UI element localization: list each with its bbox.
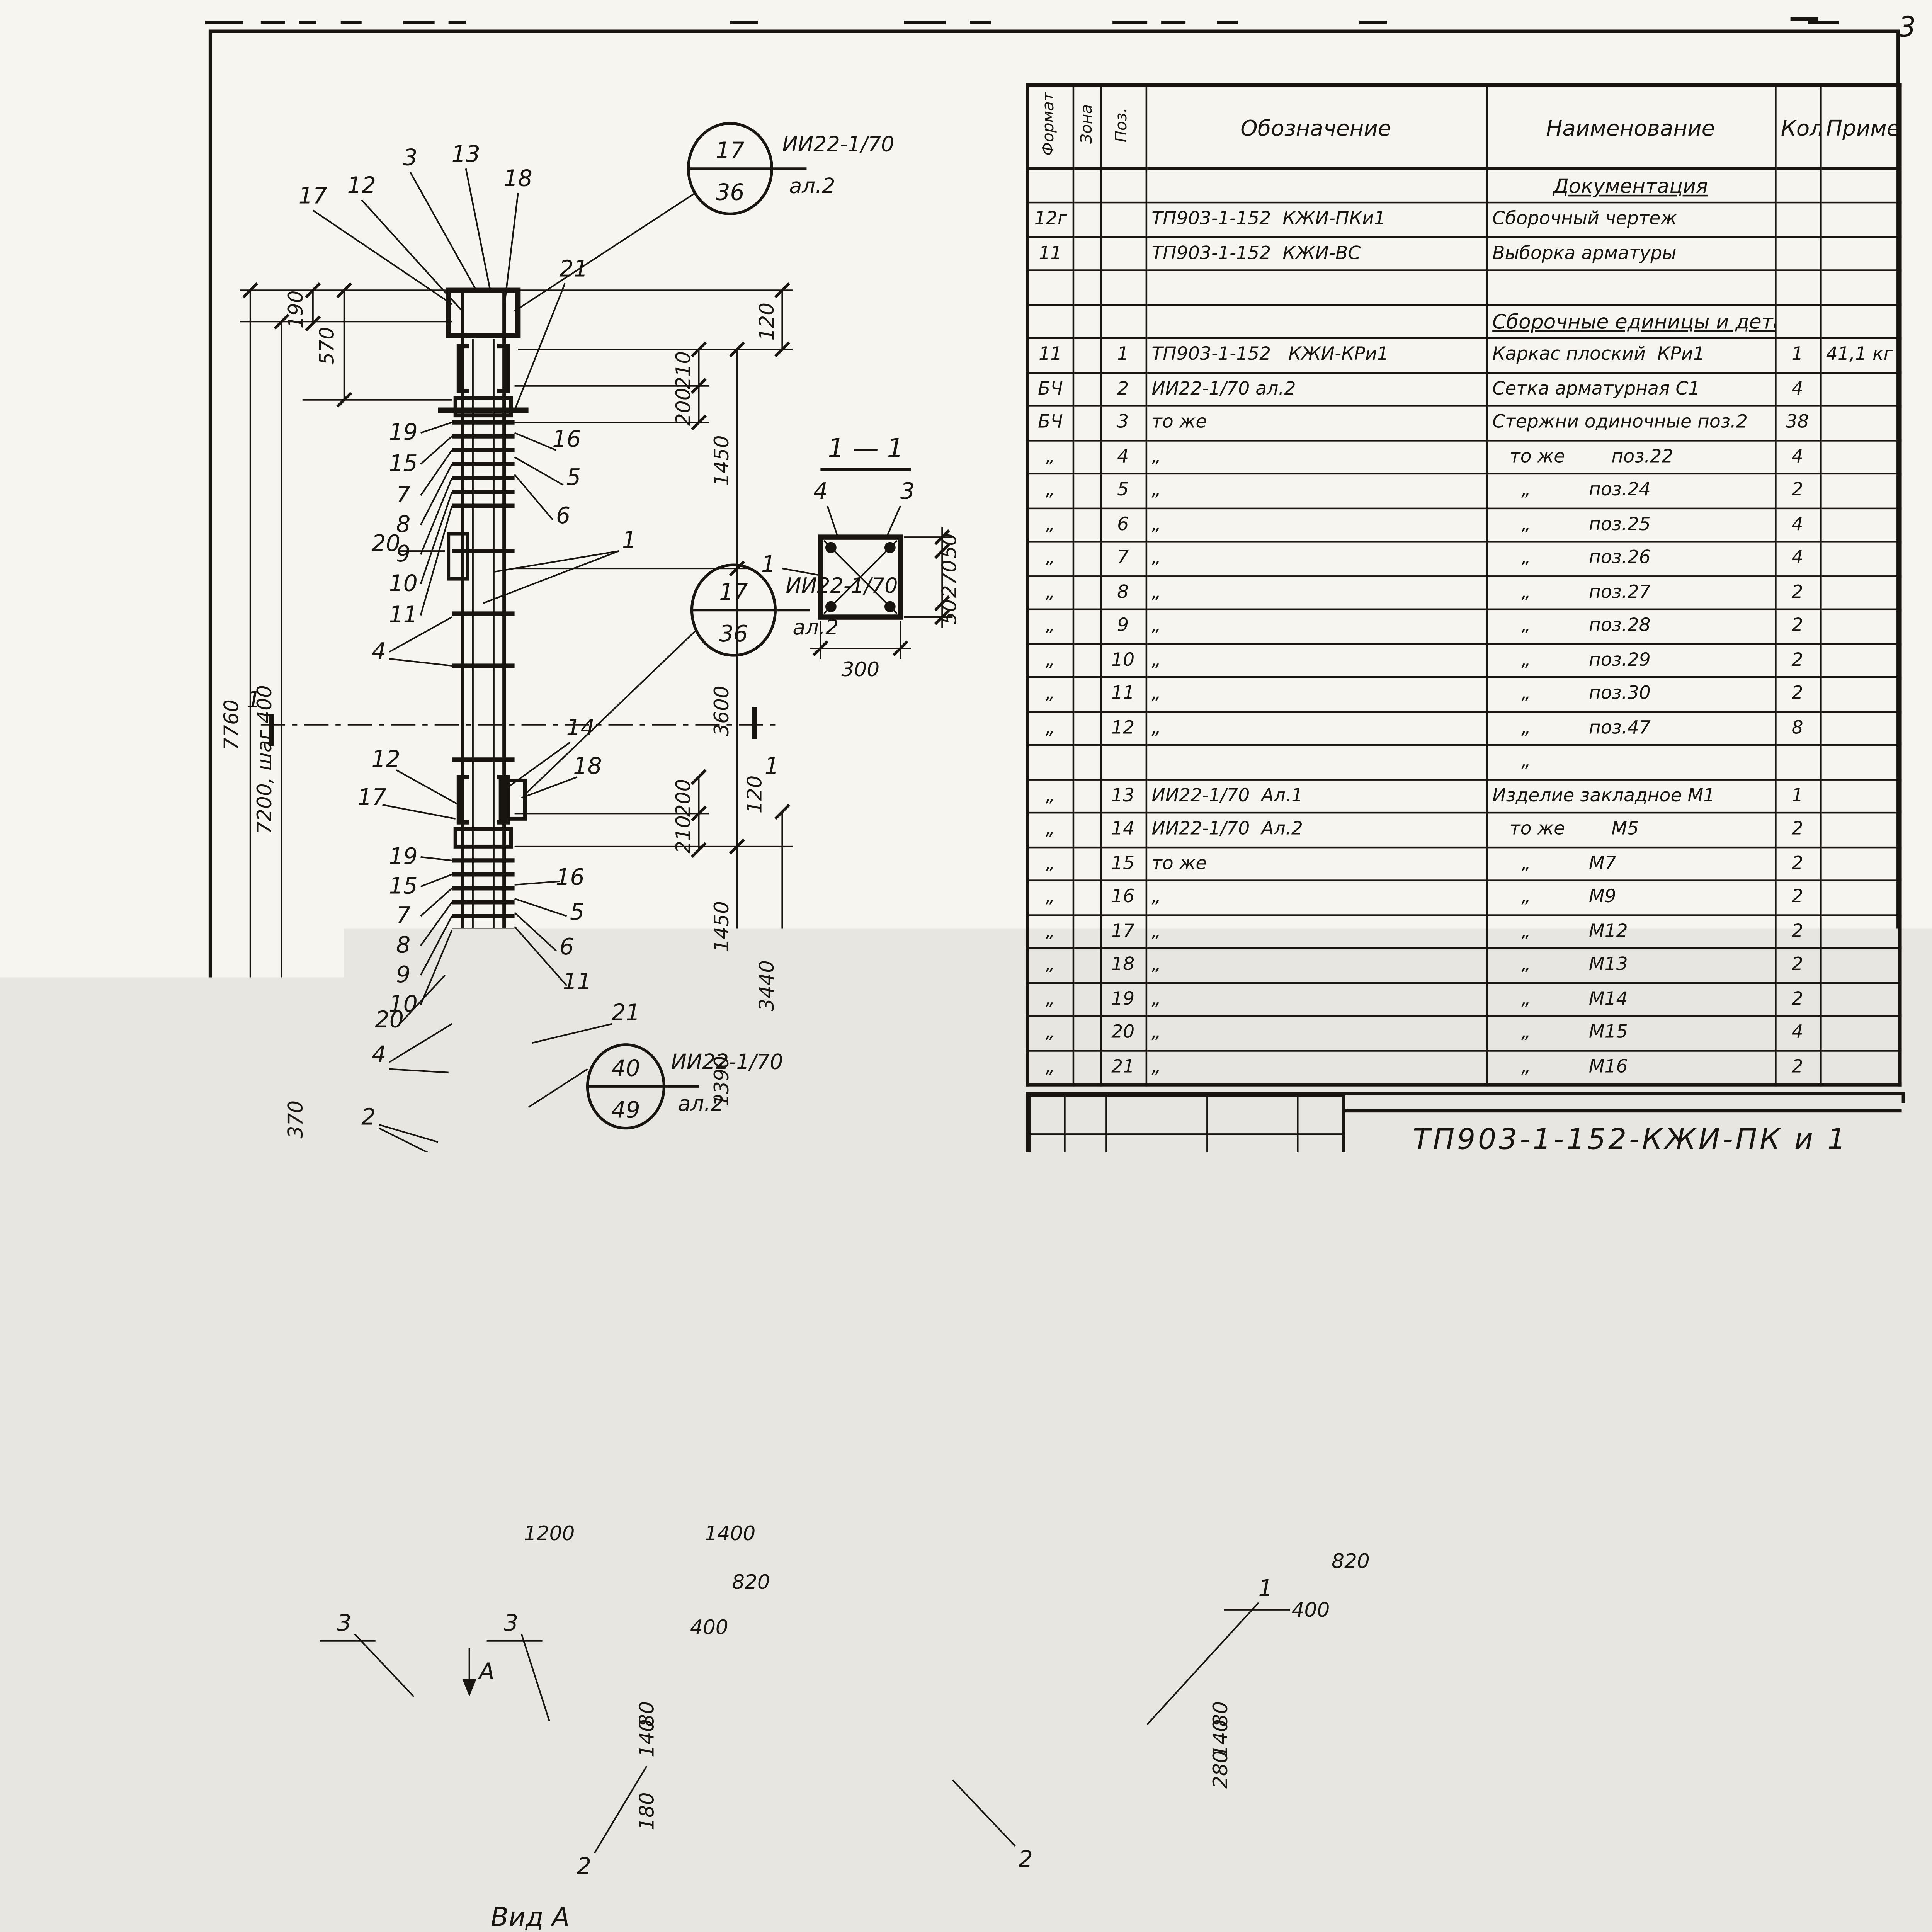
- cell-n: „ поз.25: [1486, 508, 1775, 542]
- cell-o: [1146, 745, 1486, 779]
- cell-pr: [1820, 541, 1900, 575]
- svg-text:280: 280: [1209, 1750, 1232, 1789]
- svg-text:15: 15: [389, 450, 417, 476]
- cell-f: „: [1027, 508, 1073, 542]
- cell-pr: [1820, 575, 1900, 609]
- svg-text:1 — 1: 1 — 1: [828, 433, 903, 463]
- sheet1-drawing: 1 1 7760 7200, шаг 400: [209, 29, 1026, 1335]
- svg-text:210: 210: [672, 815, 695, 854]
- svg-text:13: 13: [451, 141, 480, 167]
- spec-row: „11„ „ поз.302: [1027, 677, 1900, 711]
- cell-o: ТП903-1-152 КЖИ-КРи1: [1146, 338, 1486, 372]
- svg-text:Вид А: Вид А: [491, 1902, 570, 1932]
- cell-k: 1: [1775, 779, 1820, 813]
- page-number: 3: [1898, 10, 1916, 43]
- svg-text:1450: 1450: [710, 901, 733, 952]
- cell-z: [1073, 813, 1100, 847]
- cell-z: [1073, 745, 1100, 779]
- cell-p: 13: [1100, 779, 1146, 813]
- cell-f: 11: [1027, 236, 1073, 270]
- cell-z: [1073, 982, 1100, 1016]
- spec-row: „15то же „ М72: [1027, 847, 1900, 881]
- cell-o: „: [1146, 914, 1486, 948]
- cell-p: 4: [1100, 440, 1146, 474]
- cell-o: „: [1146, 948, 1486, 982]
- stamp-cell: Подп. и дата: [38, 1133, 94, 1260]
- spec-row: Сборочные единицы и детали: [1027, 304, 1900, 338]
- svg-text:400: 400: [690, 1616, 728, 1639]
- cell-p: [1100, 270, 1146, 304]
- cell-pr: [1820, 881, 1900, 915]
- sheet2-drawing: 1200 1400 820 400 820 400 80 140 180 80 …: [209, 1391, 1893, 1932]
- cell-n: то же М5: [1486, 813, 1775, 847]
- spec-row: „5„ „ поз.242: [1027, 474, 1900, 508]
- cell-n: „ поз.30: [1486, 677, 1775, 711]
- svg-text:17: 17: [358, 784, 386, 810]
- cell-k: 2: [1775, 982, 1820, 1016]
- cell-z: [1073, 914, 1100, 948]
- cell-pr: [1820, 982, 1900, 1016]
- svg-text:9: 9: [396, 961, 410, 988]
- spec-row: „10„ „ поз.292: [1027, 643, 1900, 677]
- svg-text:19: 19: [389, 419, 417, 445]
- svg-text:7: 7: [396, 481, 410, 508]
- cell-p: [1100, 236, 1146, 270]
- cell-o: „: [1146, 609, 1486, 643]
- header-naimenovanie: Наименование: [1486, 85, 1775, 168]
- cell-pr: [1820, 304, 1900, 338]
- spec-row: „17„ „ М122: [1027, 914, 1900, 948]
- svg-text:270: 270: [938, 560, 961, 598]
- cell-pr: [1820, 440, 1900, 474]
- cell-pr: [1820, 813, 1900, 847]
- cell-n: „ М7: [1486, 847, 1775, 881]
- spec-row: „16„ „ М92: [1027, 881, 1900, 915]
- cell-p: 10: [1100, 643, 1146, 677]
- cell-o: ИИ22-1/70 Ал.2: [1146, 813, 1486, 847]
- cell-o: [1146, 304, 1486, 338]
- series-ref-40-49: 40 49 ИИ22-1/70 ал.2: [588, 1045, 783, 1128]
- cell-n: „ М13: [1486, 948, 1775, 982]
- svg-text:17: 17: [299, 182, 327, 209]
- svg-text:4: 4: [813, 478, 828, 504]
- cell-pr: [1820, 236, 1900, 270]
- header-oboznachenie: Обозначение: [1146, 85, 1486, 168]
- svg-text:820: 820: [1332, 1550, 1370, 1573]
- cell-k: 8: [1775, 711, 1820, 745]
- drawing-title-line2: каркас ПКи1: [1352, 1255, 1658, 1283]
- svg-text:300: 300: [841, 658, 879, 681]
- cell-n: „: [1486, 745, 1775, 779]
- cell-p: 16: [1100, 881, 1146, 915]
- cell-z: [1073, 609, 1100, 643]
- svg-text:21: 21: [611, 1000, 640, 1026]
- cell-s: [1207, 1195, 1298, 1218]
- spec-header-row: Формат Зона Поз. Обозначение Наименовани…: [1027, 85, 1900, 168]
- header-poz: Поз.: [1100, 85, 1146, 168]
- cell-f: „: [1027, 881, 1073, 915]
- cell-n: „ М15: [1486, 1016, 1775, 1050]
- svg-text:ИИ22-1/70: ИИ22-1/70: [671, 1050, 783, 1074]
- cell-k: 2: [1775, 474, 1820, 508]
- sheet1-titleblock: Изм Лист N докум Подпись Дата Провер.Исп…: [1026, 1092, 1905, 1342]
- cell-z: [1073, 406, 1100, 440]
- svg-text:А: А: [478, 1658, 495, 1685]
- cell-pr: [1820, 1016, 1900, 1050]
- cell-n: „ М9: [1486, 881, 1775, 915]
- cell-1: Новикова: [1106, 1218, 1207, 1240]
- cell-k: 4: [1775, 1016, 1820, 1050]
- cell-n: то же поз.22: [1486, 440, 1775, 474]
- cell-o: „: [1146, 440, 1486, 474]
- header-kol: Кол.: [1775, 85, 1820, 168]
- doc-number: ТП903-1-152-КЖИ-ПК и 1: [1370, 1123, 1891, 1156]
- header-format: Формат: [1027, 85, 1073, 168]
- cell-k: 1: [1775, 338, 1820, 372]
- cell-k: 2: [1775, 881, 1820, 915]
- cell-f: „: [1027, 677, 1073, 711]
- section-1-1-detail: 1 — 1 4 3 1 300 50 270 50: [761, 433, 961, 681]
- cell-0: Провер.: [1030, 1195, 1106, 1218]
- cell-z: [1073, 236, 1100, 270]
- cell-z: [1073, 541, 1100, 575]
- spec-row: 11ТП903-1-152 КЖИ-ВСВыборка арматуры: [1027, 236, 1900, 270]
- cell-o: „: [1146, 643, 1486, 677]
- cell-pr: [1820, 202, 1900, 236]
- cell-o: то же: [1146, 406, 1486, 440]
- cell-k: 38: [1775, 406, 1820, 440]
- cell-pr: [1820, 270, 1900, 304]
- svg-text:4: 4: [372, 1041, 386, 1068]
- spec-row: 12гТП903-1-152 КЖИ-ПКи1Сборочный чертеж: [1027, 202, 1900, 236]
- stamp-label: Инв. N подл.: [56, 1246, 75, 1355]
- cell-z: [1073, 711, 1100, 745]
- svg-text:200: 200: [672, 388, 695, 426]
- cell-n: Документация: [1486, 168, 1775, 202]
- cell-o: „: [1146, 1016, 1486, 1050]
- sheet1-margin-stamp: Подп. и дата Инв. N подл.: [35, 1130, 97, 1345]
- svg-text:ал.2: ал.2: [789, 173, 835, 198]
- cell-p: 17: [1100, 914, 1146, 948]
- svg-text:3: 3: [403, 144, 417, 170]
- svg-text:6: 6: [556, 502, 570, 529]
- svg-text:49: 49: [611, 1097, 640, 1123]
- svg-text:1200: 1200: [524, 1522, 575, 1545]
- spec-row: „13ИИ22-1/70 Ал.1Изделие закладное М11: [1027, 779, 1900, 813]
- cell-pr: [1820, 948, 1900, 982]
- cell-n: „ поз.29: [1486, 643, 1775, 677]
- cell-pr: [1820, 168, 1900, 202]
- spec-row: „18„ „ М132: [1027, 948, 1900, 982]
- svg-text:1: 1: [622, 527, 636, 553]
- sig-h: Изм: [1030, 1172, 1065, 1195]
- cell-k: [1775, 236, 1820, 270]
- cell-z: [1073, 575, 1100, 609]
- cell-o: ИИ22-1/70 ал.2: [1146, 372, 1486, 406]
- cell-k: 2: [1775, 575, 1820, 609]
- svg-text:12: 12: [347, 172, 376, 198]
- cell-0: Нач.отд.: [1030, 1286, 1106, 1308]
- cell-pr: [1820, 779, 1900, 813]
- svg-text:19: 19: [389, 843, 417, 869]
- cell-o: [1146, 270, 1486, 304]
- cell-k: 2: [1775, 914, 1820, 948]
- cell-p: 11: [1100, 677, 1146, 711]
- cell-p: 18: [1100, 948, 1146, 982]
- mass-header: Масса: [1745, 1182, 1795, 1199]
- cell-f: „: [1027, 914, 1073, 948]
- spec-row: „12„ „ поз.478: [1027, 711, 1900, 745]
- spec-row: „8„ „ поз.272: [1027, 575, 1900, 609]
- cell-pr: [1820, 711, 1900, 745]
- cell-f: „: [1027, 711, 1073, 745]
- cell-z: [1073, 1016, 1100, 1050]
- cell-f: „: [1027, 609, 1073, 643]
- spec-row: БЧ3то жеСтержни одиночные поз.238: [1027, 406, 1900, 440]
- cell-f: [1027, 270, 1073, 304]
- cell-p: 7: [1100, 541, 1146, 575]
- cell-pr: [1820, 643, 1900, 677]
- svg-text:400: 400: [1292, 1599, 1330, 1622]
- cell-0: Рук. гр.: [1030, 1240, 1106, 1263]
- svg-text:3: 3: [337, 1610, 351, 1636]
- spec-row: „6„ „ поз.254: [1027, 508, 1900, 542]
- cell-k: 2: [1775, 609, 1820, 643]
- svg-text:21: 21: [559, 255, 588, 282]
- svg-text:180: 180: [636, 1792, 659, 1830]
- cell-n: Каркас плоский КРи1: [1486, 338, 1775, 372]
- svg-text:14: 14: [566, 714, 595, 741]
- cell-f: [1027, 168, 1073, 202]
- svg-text:6: 6: [560, 934, 574, 960]
- cell-o: то же: [1146, 847, 1486, 881]
- cell-pr: [1820, 406, 1900, 440]
- cell-o: „: [1146, 474, 1486, 508]
- svg-text:1450: 1450: [710, 435, 733, 486]
- svg-text:140: 140: [636, 1719, 659, 1757]
- cell-p: 3: [1100, 406, 1146, 440]
- cell-pr: [1820, 914, 1900, 948]
- spec-row: „4„ то же поз.224: [1027, 440, 1900, 474]
- svg-text:17: 17: [716, 137, 744, 163]
- section-flag-label: 1: [765, 753, 779, 779]
- cell-p: 12: [1100, 711, 1146, 745]
- spec-row: Документация: [1027, 168, 1900, 202]
- cell-n: „ поз.47: [1486, 711, 1775, 745]
- stamp-label: Подп. и дата: [56, 1140, 75, 1252]
- svg-text:1: 1: [1258, 1575, 1272, 1601]
- cell-f: 11: [1027, 338, 1073, 372]
- svg-text:570: 570: [316, 327, 339, 365]
- spec-row: „: [1027, 745, 1900, 779]
- svg-text:1: 1: [761, 551, 776, 577]
- svg-text:2: 2: [577, 1853, 591, 1879]
- cell-o: „: [1146, 508, 1486, 542]
- svg-text:16: 16: [552, 426, 581, 452]
- spec-row: Провер.: [1030, 1195, 1343, 1218]
- spec-row: „19„ „ М142: [1027, 982, 1900, 1016]
- svg-text:210: 210: [672, 351, 695, 389]
- cell-f: „: [1027, 474, 1073, 508]
- cell-p: 6: [1100, 508, 1146, 542]
- sig-h: Дата: [1298, 1172, 1343, 1195]
- svg-text:36: 36: [719, 621, 748, 647]
- svg-text:5: 5: [566, 464, 581, 490]
- svg-text:4: 4: [372, 638, 386, 664]
- spec-row: „7„ „ поз.264: [1027, 541, 1900, 575]
- scale-header: Масшт.: [1832, 1182, 1893, 1199]
- column-profile: [254, 1686, 1606, 1794]
- cell-k: 2: [1775, 643, 1820, 677]
- cell-z: [1073, 440, 1100, 474]
- cell-f: „: [1027, 440, 1073, 474]
- cell-f: БЧ: [1027, 406, 1073, 440]
- cell-p: 5: [1100, 474, 1146, 508]
- svg-text:11: 11: [389, 602, 417, 628]
- svg-text:18: 18: [573, 753, 602, 779]
- cell-d: [1298, 1195, 1343, 1218]
- cell-n: „ поз.26: [1486, 541, 1775, 575]
- cell-n: Выборка арматуры: [1486, 236, 1775, 270]
- svg-text:20: 20: [372, 530, 400, 556]
- cell-n: Сборочный чертеж: [1486, 202, 1775, 236]
- dimension-lines: [240, 283, 793, 1163]
- cell-z: [1073, 677, 1100, 711]
- cell-n: Сборочные единицы и детали: [1486, 304, 1775, 338]
- lit-header: Лит.: [1670, 1182, 1706, 1199]
- cell-n: Сетка арматурная С1: [1486, 372, 1775, 406]
- drawing-page: 3 Подп. и дата Инв. N подл.: [0, 0, 1932, 1932]
- svg-text:36: 36: [716, 179, 744, 205]
- scale-value: Б/М: [1839, 1222, 1875, 1245]
- svg-text:370: 370: [284, 1100, 308, 1139]
- svg-text:7: 7: [396, 902, 410, 929]
- svg-text:ИИ22-1/70: ИИ22-1/70: [786, 573, 898, 598]
- cell-k: [1775, 304, 1820, 338]
- svg-text:3600: 3600: [710, 685, 733, 736]
- cell-p: [1100, 202, 1146, 236]
- spec-row: „14ИИ22-1/70 Ал.2 то же М52: [1027, 813, 1900, 847]
- cell-n: Изделие закладное М1: [1486, 779, 1775, 813]
- cell-o: „: [1146, 677, 1486, 711]
- cell-f: БЧ: [1027, 372, 1073, 406]
- cell-f: „: [1027, 982, 1073, 1016]
- cell-k: [1775, 745, 1820, 779]
- cell-pr: [1820, 474, 1900, 508]
- svg-text:18: 18: [503, 165, 532, 191]
- album-label: Альбом IV: [52, 1651, 82, 1816]
- svg-text:2: 2: [361, 1104, 376, 1130]
- svg-text:3: 3: [504, 1610, 518, 1636]
- cell-k: 2: [1775, 847, 1820, 881]
- cell-z: [1073, 779, 1100, 813]
- cell-o: ТП903-1-152 КЖИ-ПКи1: [1146, 202, 1486, 236]
- spec-row: „9„ „ поз.282: [1027, 609, 1900, 643]
- cell-n: „ поз.28: [1486, 609, 1775, 643]
- header-primechanie: Приме чание: [1820, 85, 1900, 168]
- cell-1: [1106, 1195, 1207, 1218]
- cell-f: „: [1027, 813, 1073, 847]
- cell-pr: [1820, 372, 1900, 406]
- cell-k: 2: [1775, 1050, 1820, 1084]
- cell-pr: [1820, 609, 1900, 643]
- spec-row: „20„ „ М154: [1027, 1016, 1900, 1050]
- column-linework: [438, 290, 529, 1156]
- svg-text:11: 11: [563, 968, 591, 995]
- cell-f: „: [1027, 847, 1073, 881]
- cell-pr: [1820, 745, 1900, 779]
- cell-z: [1073, 372, 1100, 406]
- sig-h: Лист: [1065, 1172, 1106, 1195]
- cell-k: [1775, 202, 1820, 236]
- cell-o: ТП903-1-152 КЖИ-ВС: [1146, 236, 1486, 270]
- svg-text:ИИ22-1/70: ИИ22-1/70: [782, 132, 894, 156]
- cell-o: „: [1146, 881, 1486, 915]
- cell-p: 20: [1100, 1016, 1146, 1050]
- cell-f: „: [1027, 779, 1073, 813]
- spec-row: „21„ „ М162: [1027, 1050, 1900, 1084]
- svg-text:50: 50: [938, 533, 961, 559]
- svg-text:820: 820: [732, 1571, 770, 1594]
- cell-p: 1: [1100, 338, 1146, 372]
- cell-o: „: [1146, 1050, 1486, 1084]
- cell-pr: [1820, 677, 1900, 711]
- cell-p: 8: [1100, 575, 1146, 609]
- cell-0: Гл.конст.: [1030, 1263, 1106, 1285]
- svg-text:40: 40: [611, 1055, 640, 1082]
- cell-n: „ М12: [1486, 914, 1775, 948]
- svg-text:3: 3: [900, 478, 915, 504]
- cell-f: „: [1027, 575, 1073, 609]
- corner-mark: [1791, 17, 1818, 21]
- cell-z: [1073, 1050, 1100, 1084]
- svg-text:10: 10: [389, 570, 417, 597]
- cell-pr: [1820, 508, 1900, 542]
- svg-text:2: 2: [1019, 1846, 1033, 1872]
- cell-p: [1100, 168, 1146, 202]
- svg-text:190: 190: [284, 290, 308, 328]
- cell-n: „ М16: [1486, 1050, 1775, 1084]
- mass-value: 311,3кг: [1738, 1222, 1815, 1245]
- lit-value: Р: [1669, 1222, 1682, 1247]
- section-cut-mark: [261, 707, 776, 746]
- cell-1: ГИН: [1106, 1286, 1207, 1308]
- cell-1: Воробьева: [1106, 1240, 1207, 1263]
- cell-o: „: [1146, 982, 1486, 1016]
- svg-text:8: 8: [396, 932, 410, 958]
- cell-k: [1775, 168, 1820, 202]
- cell-p: 15: [1100, 847, 1146, 881]
- cell-0: Исполн.: [1030, 1218, 1106, 1240]
- cell-o: „: [1146, 541, 1486, 575]
- svg-text:50: 50: [938, 599, 961, 625]
- cell-z: [1073, 304, 1100, 338]
- series-ref-17-36: 17 36 ИИ22-1/70 ал.2: [688, 123, 894, 214]
- svg-text:16: 16: [556, 864, 584, 890]
- spec-row: 111ТП903-1-152 КЖИ-КРи1Каркас плоский КР…: [1027, 338, 1900, 372]
- cell-k: 2: [1775, 813, 1820, 847]
- cell-f: 12г: [1027, 202, 1073, 236]
- cell-f: „: [1027, 541, 1073, 575]
- sig-header-row: Изм Лист N докум Подпись Дата: [1030, 1172, 1343, 1195]
- cell-k: 4: [1775, 440, 1820, 474]
- cell-f: „: [1027, 948, 1073, 982]
- svg-text:5: 5: [570, 899, 584, 925]
- leader-lines: [320, 1603, 1290, 1853]
- cell-p: 14: [1100, 813, 1146, 847]
- svg-text:200: 200: [672, 779, 695, 817]
- cell-p: 19: [1100, 982, 1146, 1016]
